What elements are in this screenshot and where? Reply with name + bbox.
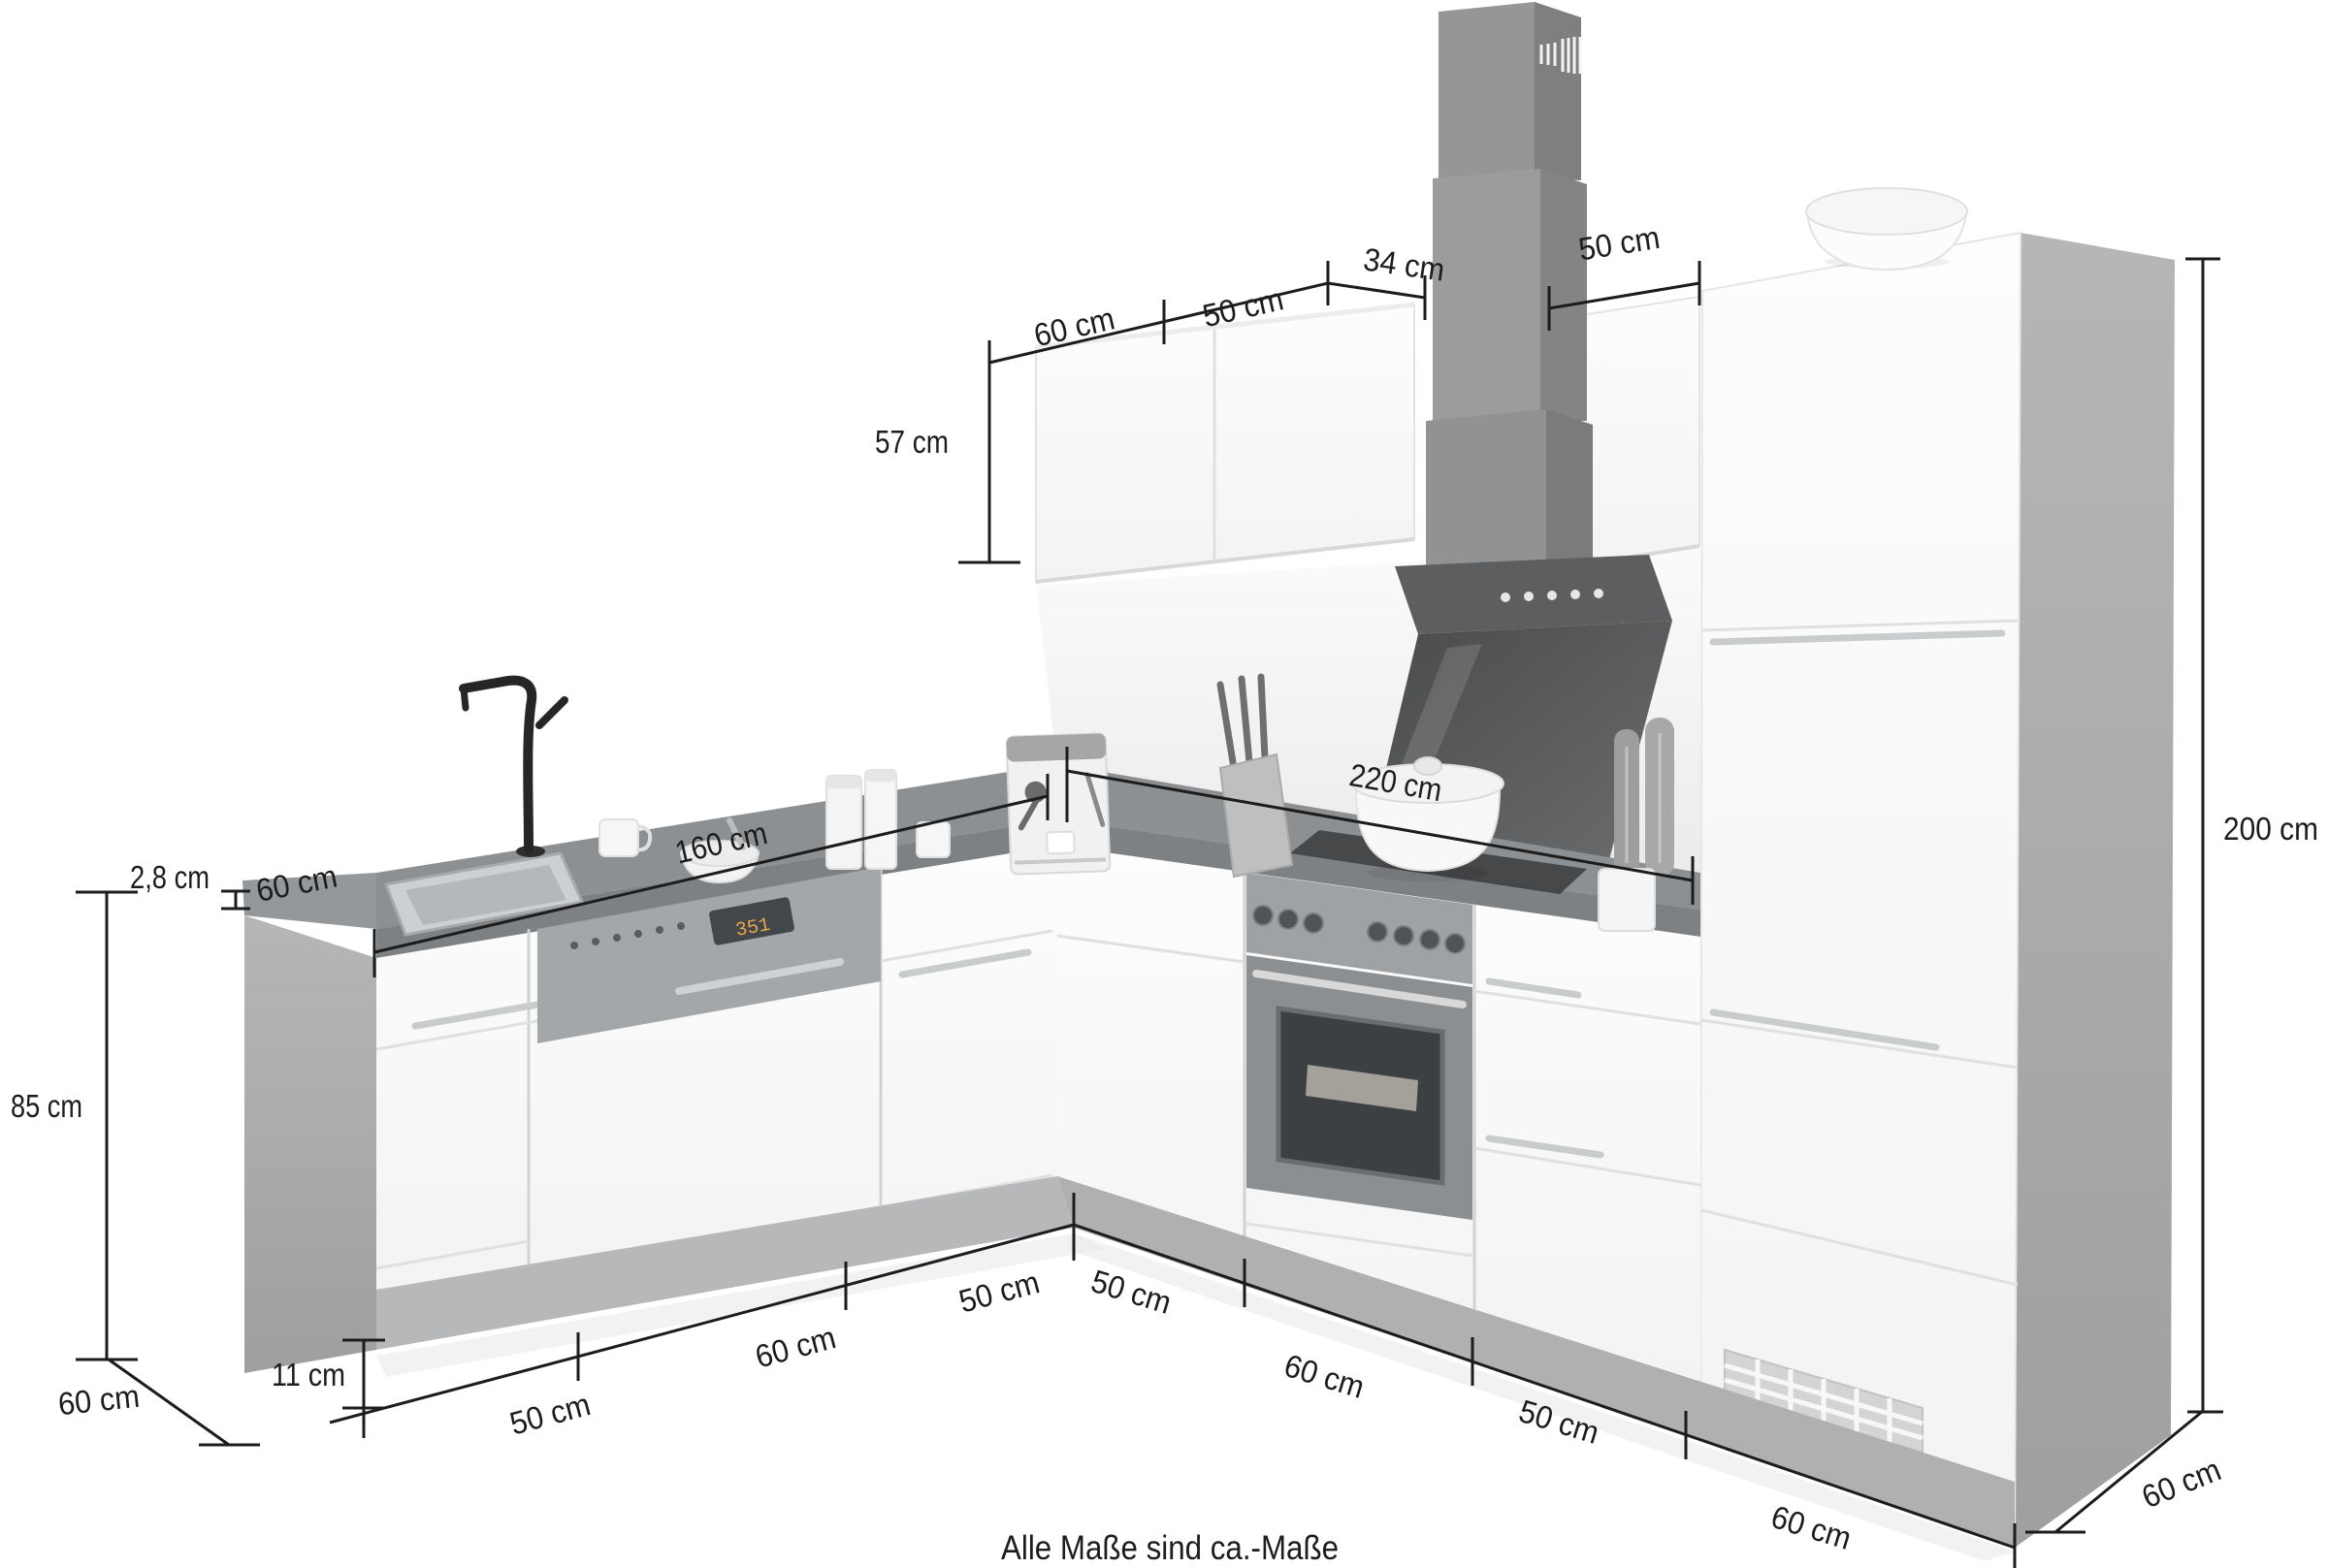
kitchen-dimension-diagram: 351 [0,0,2328,1568]
dim-base-height-85: 85 cm [11,892,138,1360]
diagram-canvas: 351 [0,0,2328,1568]
dim-label-85: 85 cm [11,1088,82,1124]
tall-cabinet-side [2015,233,2175,1548]
tall-cabinet [1700,188,2175,1548]
dim-label-57: 57 cm [875,424,949,460]
dim-label-left-seg-50b: 50 cm [506,1386,595,1441]
dim-label-left-seg-60: 60 cm [752,1319,840,1374]
dim-tall-height-200: 200 cm [2185,259,2318,1411]
wall-cabinets-left [1036,304,1414,582]
faucet [464,681,565,857]
dim-label-28: 2,8 cm [130,859,210,895]
left-end-panel [244,915,376,1373]
tall-cabinet-front [1700,233,2021,1548]
hood-chimney [1426,2,1593,578]
dim-label-right-depth-60: 60 cm [2137,1451,2226,1515]
dim-label-11: 11 cm [272,1357,345,1392]
coffee-machine [1007,733,1111,874]
dim-label-right-seg-60a: 60 cm [1280,1347,1369,1405]
dim-wall-cabinet-height-57: 57 cm [875,363,1020,562]
dim-label-200: 200 cm [2223,811,2318,847]
dim-left-depth-60: 60 cm [56,1360,260,1445]
dim-label-left-depth-60: 60 cm [56,1378,141,1423]
dim-label-top-right-50: 50 cm [1576,219,1663,268]
disclaimer-note: Alle Maße sind ca.-Maße [1001,1529,1339,1567]
